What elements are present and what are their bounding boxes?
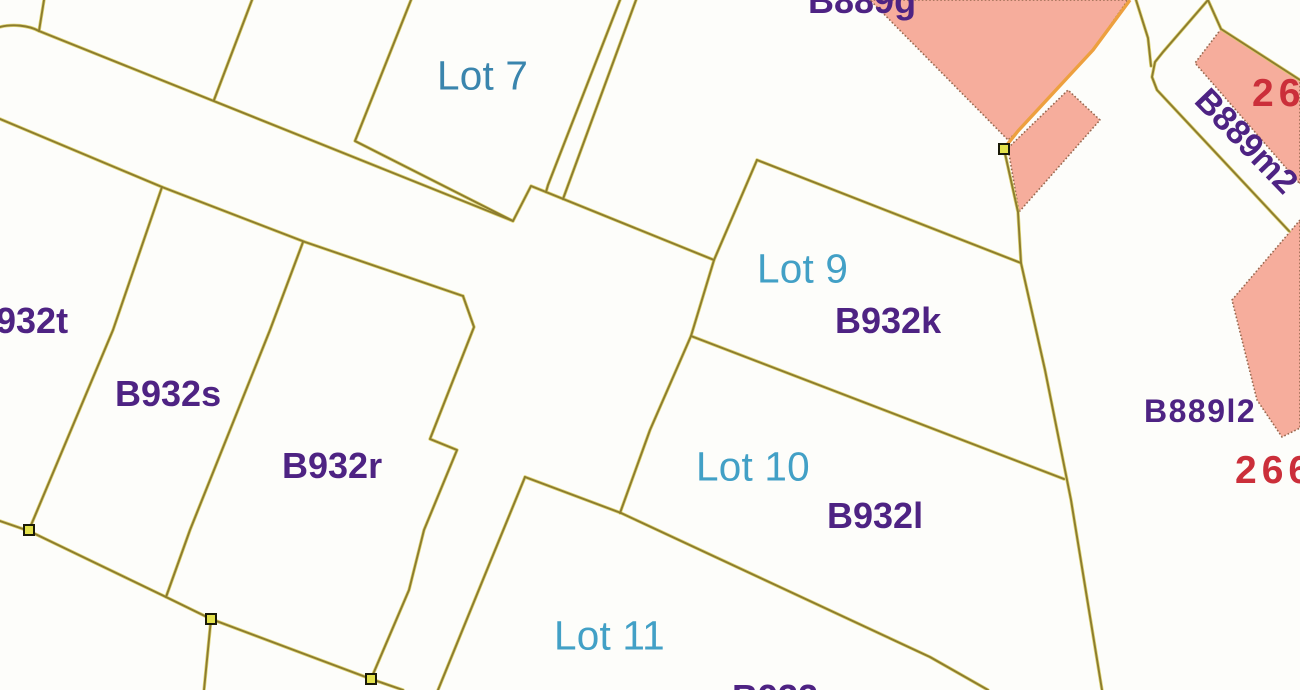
svg-text:B932m: B932m (732, 677, 850, 690)
svg-text:B932r: B932r (282, 445, 382, 486)
svg-text:B932l: B932l (827, 495, 923, 536)
svg-text:B932s: B932s (115, 373, 221, 414)
svg-text:B889g: B889g (808, 0, 916, 21)
svg-text:B889l2: B889l2 (1144, 393, 1256, 429)
svg-text:B932t: B932t (0, 300, 68, 341)
svg-text:B932k: B932k (835, 300, 942, 341)
svg-text:266: 266 (1252, 72, 1300, 115)
svg-text:Lot 7: Lot 7 (437, 53, 528, 99)
svg-text:Lot 11: Lot 11 (554, 613, 665, 659)
svg-text:266: 266 (1235, 449, 1300, 492)
svg-text:Lot 10: Lot 10 (696, 444, 810, 490)
svg-text:Lot 9: Lot 9 (757, 246, 848, 292)
